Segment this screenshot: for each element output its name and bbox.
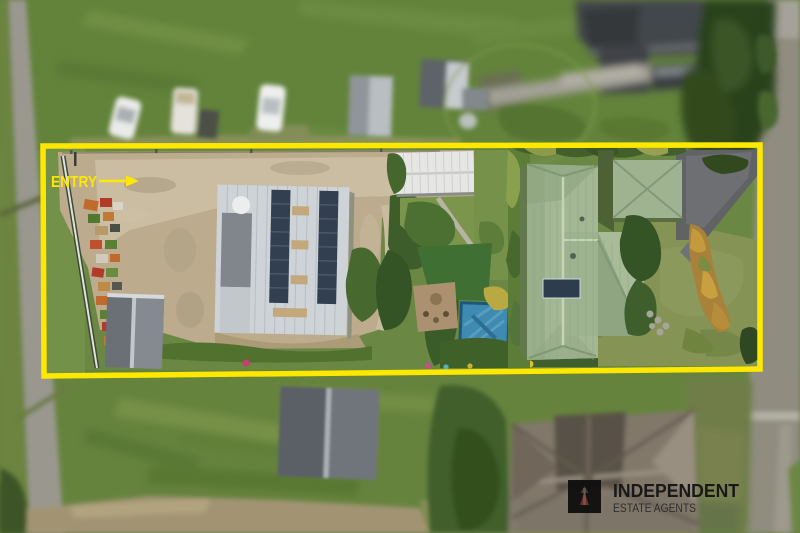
svg-text:INDEPENDENT: INDEPENDENT (613, 481, 739, 501)
svg-text:ENTRY: ENTRY (51, 174, 97, 191)
svg-text:ESTATE AGENTS: ESTATE AGENTS (613, 501, 696, 515)
